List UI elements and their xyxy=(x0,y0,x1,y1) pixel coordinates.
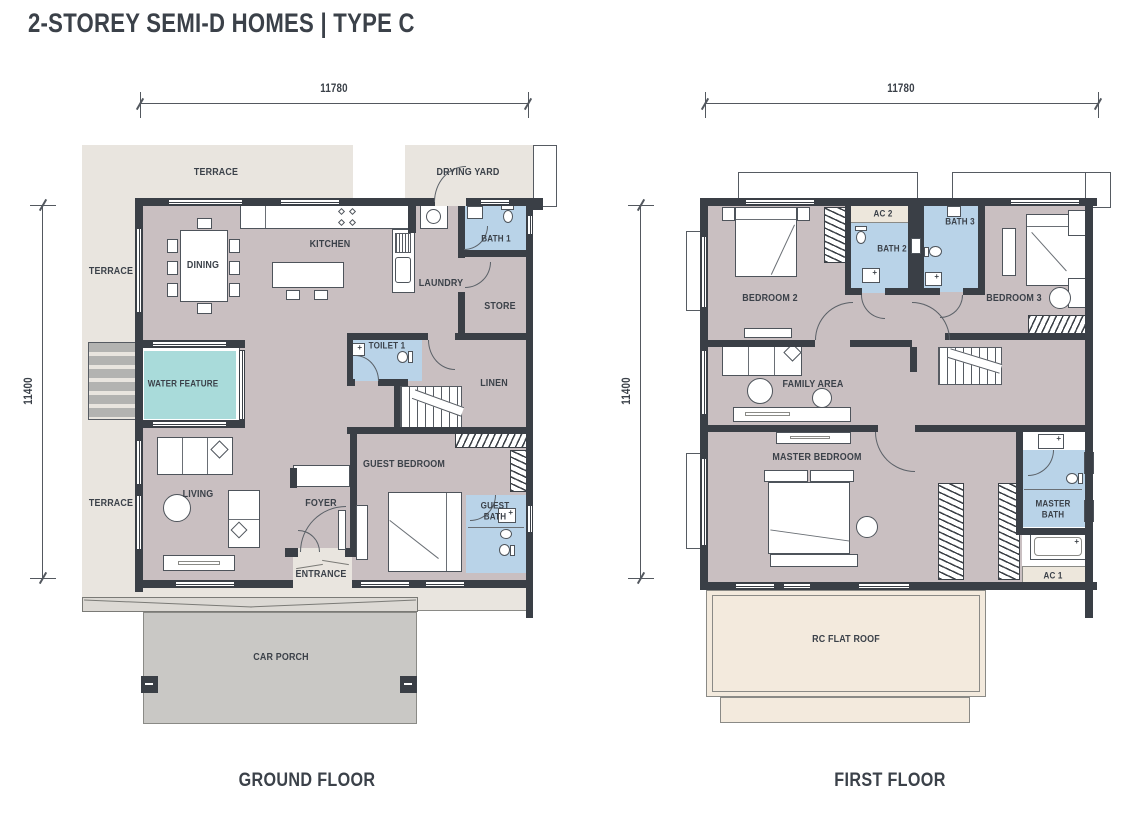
desk xyxy=(1068,278,1086,308)
wall xyxy=(850,340,912,347)
chair xyxy=(167,261,178,275)
room-label-ac2: AC 2 xyxy=(873,209,892,220)
room-label-bath2: BATH 2 xyxy=(877,244,907,255)
ground-floor-caption: GROUND FLOOR xyxy=(239,770,376,792)
window xyxy=(280,199,340,205)
room-label-bedroom2: BEDROOM 2 xyxy=(742,292,798,304)
basin-icon xyxy=(352,343,365,356)
toilet-icon xyxy=(929,246,942,257)
room-label-entrance: ENTRANCE xyxy=(296,568,347,580)
toilet-tank xyxy=(1078,473,1083,484)
wall xyxy=(405,333,428,340)
basin-icon xyxy=(467,206,483,219)
page-title: 2-STOREY SEMI-D HOMES | TYPE C xyxy=(28,8,415,39)
toilet-tank xyxy=(510,545,515,556)
wall xyxy=(978,203,985,293)
dresser-detail xyxy=(790,436,830,439)
window xyxy=(152,421,227,427)
room-label-rc-flat-roof: RC FLAT ROOF xyxy=(812,633,880,645)
shower-screen xyxy=(1024,489,1082,490)
wall xyxy=(845,203,851,295)
dimension-label: 11780 xyxy=(320,83,348,95)
room-label-terrace: TERRACE xyxy=(194,166,238,178)
room-label-car-porch: CAR PORCH xyxy=(253,651,309,663)
counter-seam xyxy=(265,204,266,228)
window xyxy=(360,581,410,587)
room-label-terrace: TERRACE xyxy=(89,265,133,277)
console-detail xyxy=(745,412,790,416)
window xyxy=(745,199,815,205)
sink-icon xyxy=(395,257,411,283)
bed-pillow-line xyxy=(736,219,796,220)
chair-round xyxy=(1049,287,1071,309)
nightstand xyxy=(797,207,810,221)
shower-screen xyxy=(468,527,524,528)
gf-ground-strip-right xyxy=(418,598,527,611)
shower-icon xyxy=(925,272,942,286)
wall xyxy=(910,347,917,372)
wardrobe xyxy=(938,483,964,580)
room-label-linen: LINEN xyxy=(480,377,508,389)
water-feature-slats xyxy=(88,342,141,420)
wall xyxy=(408,203,416,233)
wall xyxy=(1085,198,1093,618)
bed xyxy=(735,207,797,277)
room-label-bedroom3: BEDROOM 3 xyxy=(986,292,1042,304)
chair xyxy=(229,283,240,297)
window xyxy=(136,495,142,550)
chair xyxy=(197,218,212,229)
nightstand xyxy=(722,207,735,221)
room-label-drying-yard: DRYING YARD xyxy=(436,166,499,178)
pillow xyxy=(810,470,854,482)
chair xyxy=(167,283,178,297)
dimension-line xyxy=(42,205,43,578)
dimension-line xyxy=(140,103,528,104)
wall xyxy=(458,250,533,257)
window xyxy=(783,583,811,589)
room-label-toilet1: TOILET 1 xyxy=(369,341,406,352)
room-label-master-bedroom: MASTER BEDROOM xyxy=(772,451,861,463)
stool xyxy=(286,290,300,300)
window xyxy=(480,199,510,205)
stool-round xyxy=(856,516,878,538)
wall xyxy=(378,379,408,386)
window xyxy=(701,458,707,546)
dimension-line xyxy=(705,103,1098,104)
toilet-icon xyxy=(1066,473,1078,484)
first-floor-caption: FIRST FLOOR xyxy=(834,770,945,792)
sofa-seam xyxy=(182,438,183,474)
wall xyxy=(700,340,815,347)
washing-machine-drum xyxy=(426,209,441,224)
gf-yard-box-wall xyxy=(533,198,543,210)
wall xyxy=(885,288,940,295)
window xyxy=(1010,199,1080,205)
basin-icon xyxy=(500,529,512,539)
window xyxy=(425,581,465,587)
room-label-store: STORE xyxy=(484,300,515,312)
room-label-foyer: FOYER xyxy=(305,497,337,509)
wall xyxy=(700,425,878,432)
toilet-tank xyxy=(408,351,413,363)
toilet-icon xyxy=(499,544,510,556)
chair xyxy=(167,239,178,253)
pillow xyxy=(764,470,808,482)
wall xyxy=(963,288,985,295)
shower-icon xyxy=(1038,434,1064,449)
wall xyxy=(290,468,297,488)
window xyxy=(239,350,245,420)
coffee-table xyxy=(747,378,773,404)
chair xyxy=(197,303,212,314)
bed-bench xyxy=(770,554,858,567)
room-label-master-bath: MASTER BATH xyxy=(1033,499,1074,520)
bed xyxy=(388,492,462,572)
chair xyxy=(229,239,240,253)
wall xyxy=(526,198,533,618)
floor-plan-sheet: 2-STOREY SEMI-D HOMES | TYPE C xyxy=(0,0,1139,814)
window xyxy=(152,341,227,347)
wall xyxy=(455,333,533,340)
dimension-label: 11780 xyxy=(887,83,915,95)
window xyxy=(168,199,243,205)
desk xyxy=(1002,228,1016,276)
toilet-icon xyxy=(397,351,408,363)
basin-icon xyxy=(947,206,961,217)
post-dash xyxy=(404,683,412,685)
window xyxy=(701,236,707,308)
bed-pillow-line xyxy=(446,493,447,571)
window xyxy=(701,350,707,415)
sofa-seam xyxy=(207,438,208,474)
dish-rack-icon xyxy=(395,233,411,253)
bathtub-inner xyxy=(1034,537,1082,556)
toilet-icon xyxy=(503,210,513,223)
rc-flat-roof-step xyxy=(720,697,970,723)
shower-icon xyxy=(862,268,880,283)
room-label-guest-bath: GUEST BATH xyxy=(475,501,516,522)
wardrobe xyxy=(824,207,846,263)
room-label-living: LIVING xyxy=(183,488,214,500)
tv-icon xyxy=(178,561,220,565)
wall xyxy=(347,427,533,434)
room-label-bath3: BATH 3 xyxy=(945,217,975,228)
room-label-laundry: LAUNDRY xyxy=(419,277,463,289)
window xyxy=(735,583,775,589)
window xyxy=(136,228,142,313)
room-label-terrace: TERRACE xyxy=(89,497,133,509)
window xyxy=(527,505,533,533)
car-porch-slab xyxy=(143,612,417,724)
wall xyxy=(285,548,298,557)
room-label-dining: DINING xyxy=(187,259,219,271)
dimension-label: 11400 xyxy=(621,377,633,405)
console xyxy=(744,328,792,338)
porch-roof-band xyxy=(82,597,418,612)
wall xyxy=(945,333,1090,340)
window xyxy=(527,215,533,235)
room-label-family-area: FAMILY AREA xyxy=(782,378,843,390)
window xyxy=(175,581,235,587)
wall xyxy=(1016,432,1023,532)
window xyxy=(858,583,910,589)
dimension-line xyxy=(640,205,641,578)
armchair-seam xyxy=(229,519,259,520)
side-table xyxy=(812,388,832,408)
wall xyxy=(845,288,862,295)
room-label-bath1: BATH 1 xyxy=(481,234,511,245)
toilet-icon xyxy=(856,231,866,244)
chair xyxy=(229,261,240,275)
kitchen-island xyxy=(272,262,344,288)
wall xyxy=(1016,528,1090,535)
room-label-kitchen: KITCHEN xyxy=(310,238,351,250)
pocket-door-panel xyxy=(356,505,368,560)
window xyxy=(136,440,142,485)
room-label-guest-bedroom: GUEST BEDROOM xyxy=(363,458,445,470)
bed xyxy=(768,482,850,554)
wall xyxy=(347,379,355,386)
wall-niche xyxy=(911,238,921,254)
room-label-ac1: AC 1 xyxy=(1043,571,1062,582)
stool xyxy=(314,290,328,300)
wall xyxy=(347,333,408,340)
dimension-label: 11400 xyxy=(23,377,35,405)
foyer-cabinet xyxy=(293,465,350,487)
post-dash xyxy=(145,683,153,685)
nightstand xyxy=(1068,210,1086,236)
wall xyxy=(915,425,1090,432)
room-label-water-feature: WATER FEATURE xyxy=(148,379,219,390)
wall xyxy=(345,548,352,557)
